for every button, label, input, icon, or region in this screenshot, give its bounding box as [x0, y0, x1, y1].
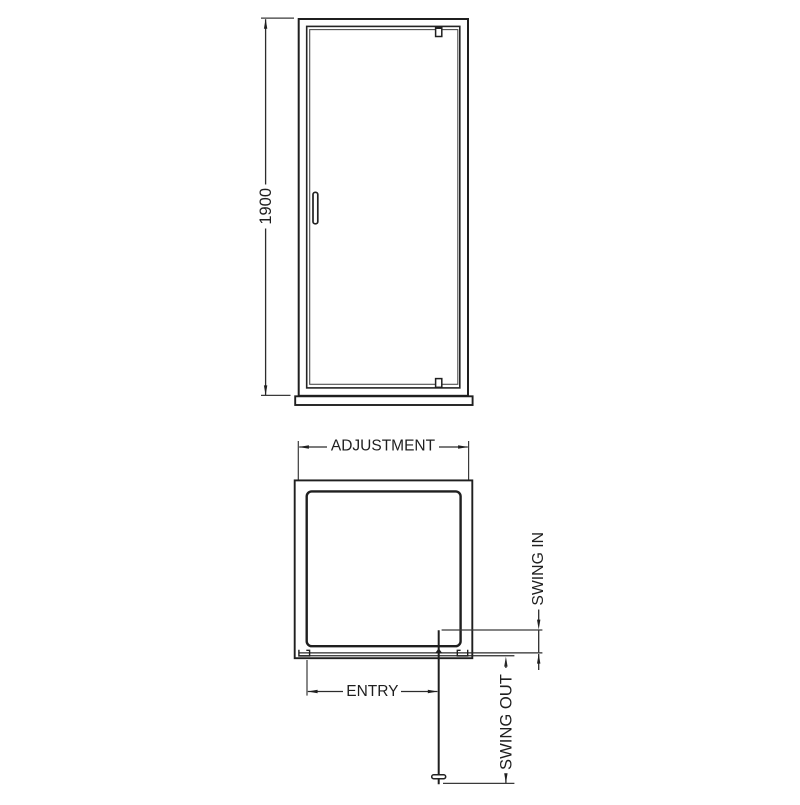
- svg-text:SWING IN: SWING IN: [530, 532, 547, 606]
- svg-text:ADJUSTMENT: ADJUSTMENT: [331, 438, 436, 455]
- svg-text:SWING OUT: SWING OUT: [496, 674, 515, 770]
- svg-text:1900: 1900: [257, 188, 275, 225]
- svg-text:ENTRY: ENTRY: [346, 683, 398, 700]
